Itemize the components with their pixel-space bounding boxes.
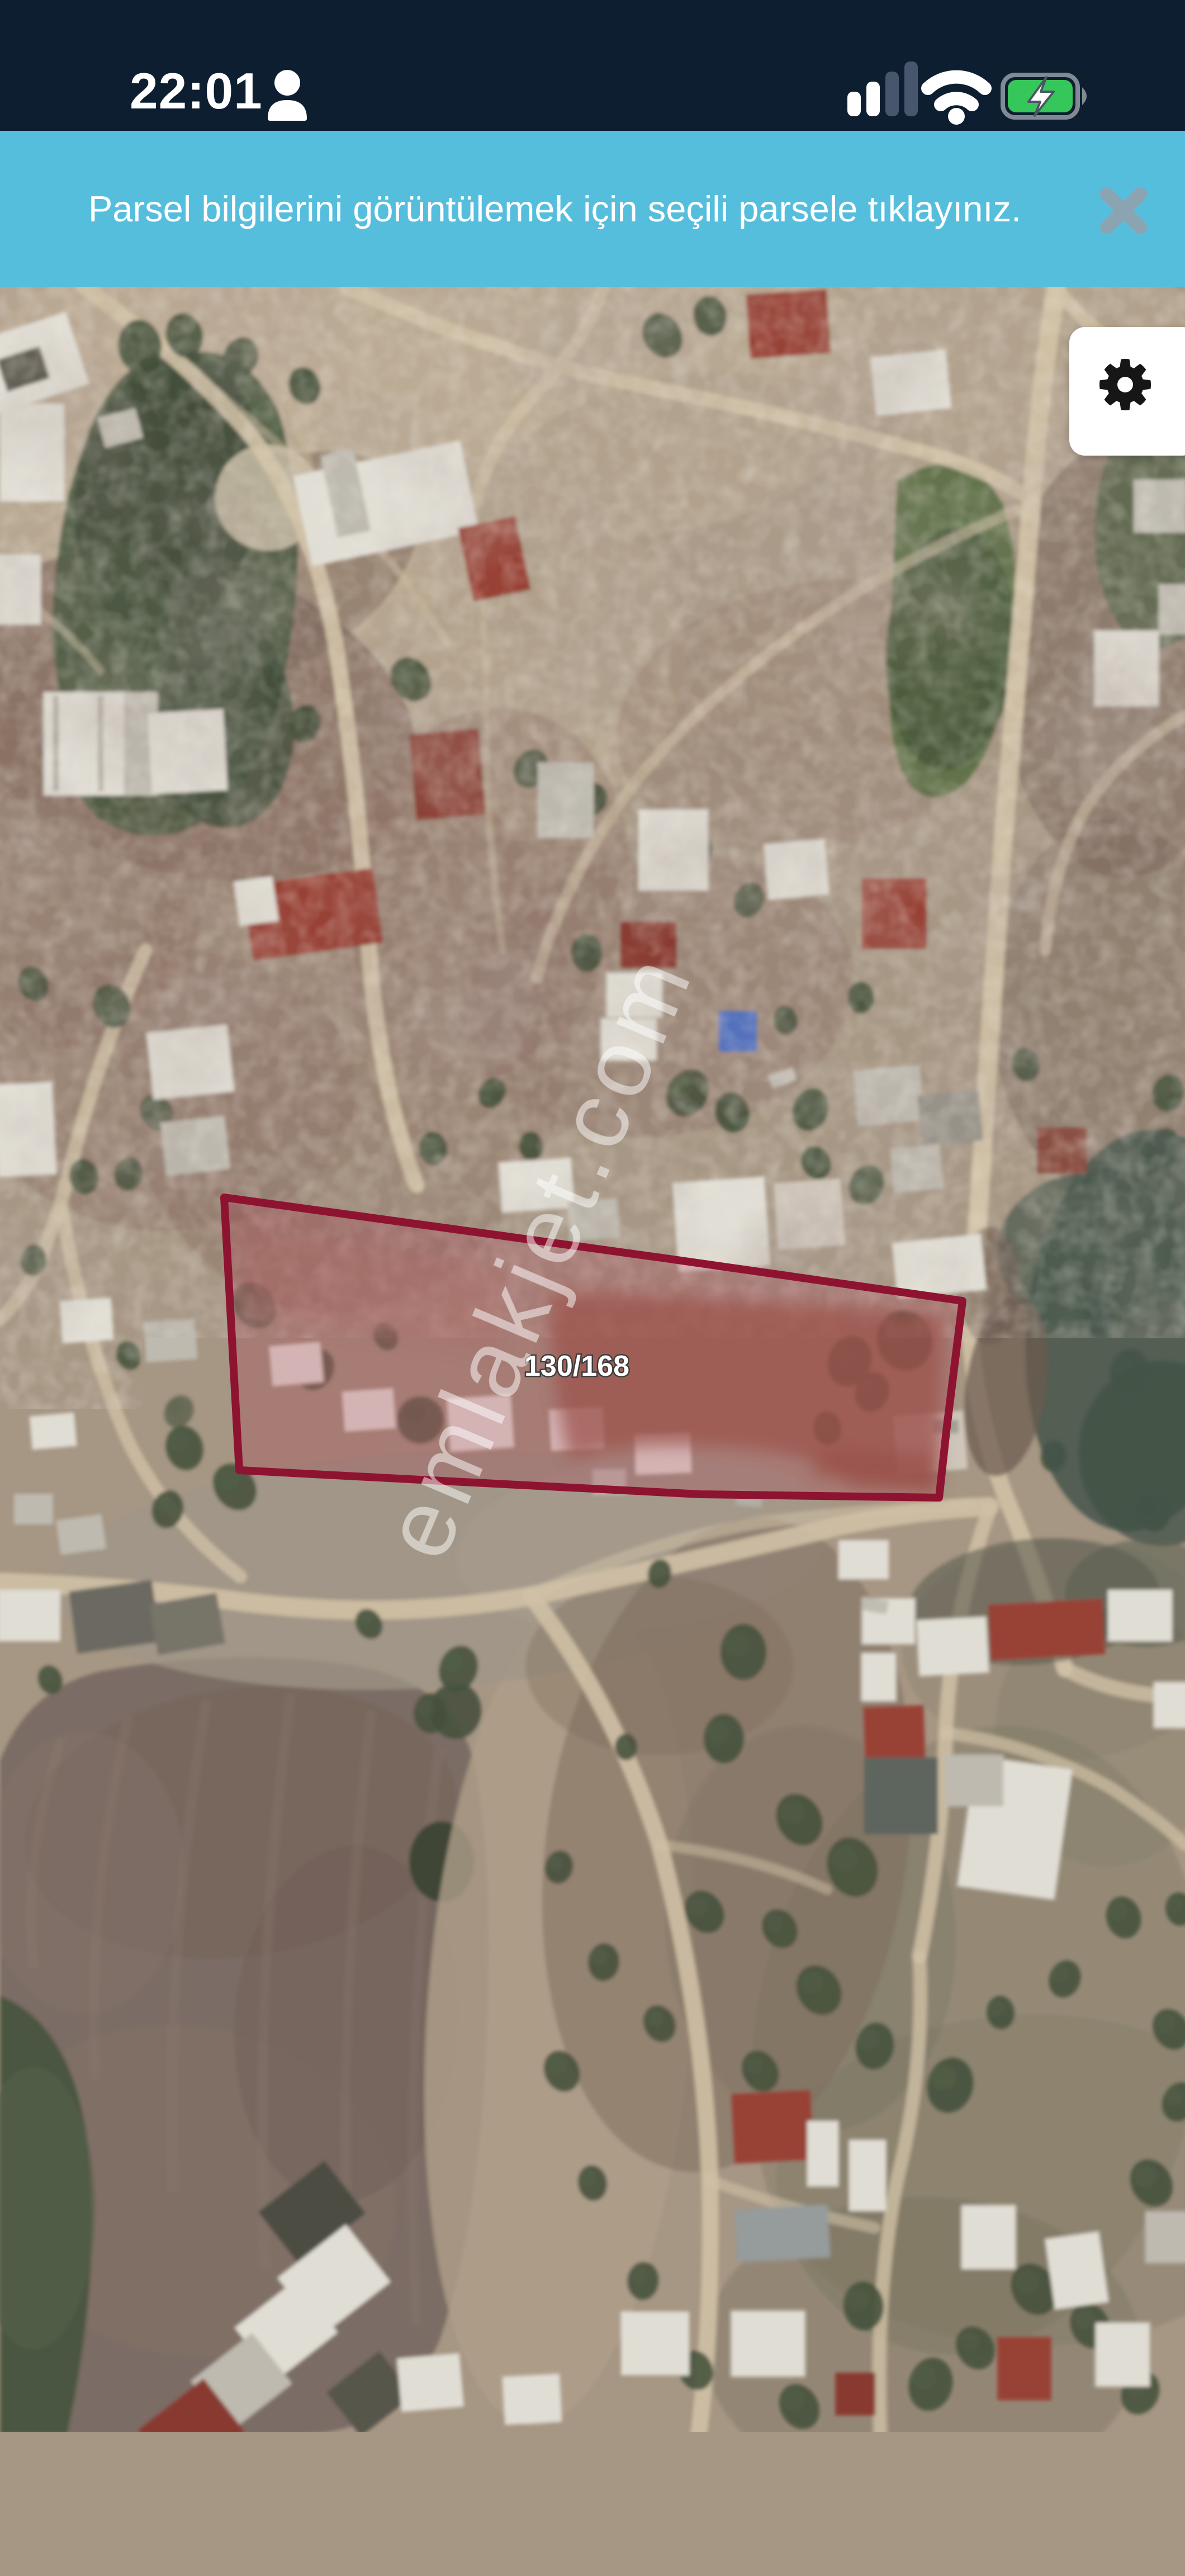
svg-text:2025 Google: 2025 Google (85, 1895, 358, 1945)
svg-text:i: i (468, 2461, 512, 2545)
